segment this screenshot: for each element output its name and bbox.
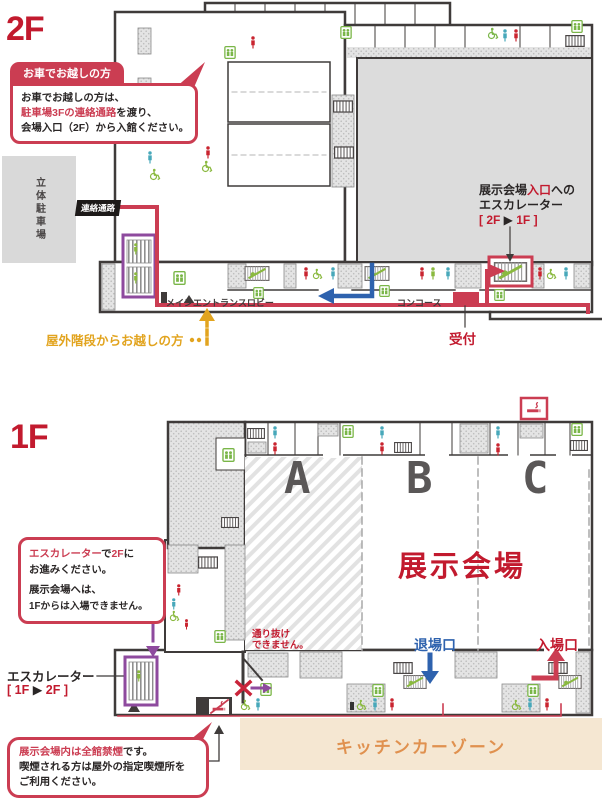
venue-floor-map: 2F お車でお越しの方 お車でお越しの方は、 駐車場3Fの連絡通路を渡り、 会場… — [0, 0, 602, 801]
no-passage-note: 通り抜け できません。 — [252, 629, 309, 651]
car-callout-line2: 駐車場3Fの連絡通路を渡り、 — [21, 106, 187, 121]
stairs-icon — [571, 441, 588, 451]
escalator-note-line3: [ 2F ▶ 1F ] — [479, 213, 575, 228]
escalator-direction: [ 1F ▶ 2F ] — [7, 682, 68, 697]
escalator-callout-line3: 展示会場へは、 — [29, 583, 155, 599]
stairs-icon — [334, 101, 353, 112]
exhibition-hall-label: 展示会場 — [398, 543, 526, 585]
elevator-icon — [343, 426, 353, 438]
stairs-icon — [335, 147, 354, 158]
elevator-icon — [174, 272, 185, 285]
floor2-map — [2, 3, 602, 344]
car-callout-line1: お車でお越しの方は、 — [21, 91, 187, 106]
escalator-note-line2: エスカレーター — [479, 198, 575, 213]
floor1-number: 1F — [10, 418, 48, 457]
stairs-icon — [248, 429, 265, 439]
escalator-icon — [559, 676, 581, 689]
elevator-icon — [373, 685, 383, 697]
elevator-icon — [215, 631, 225, 643]
hall-entrance-escalator-note: 展示会場入口への エスカレーター [ 2F ▶ 1F ] — [479, 183, 575, 228]
outdoor-stairs-arrow — [190, 308, 215, 344]
stairs-icon — [395, 443, 412, 453]
zone-b-label: B — [406, 453, 433, 504]
elevator-icon — [572, 424, 582, 436]
stairs-icon — [199, 557, 218, 568]
elevator-icon — [341, 27, 351, 39]
car-callout-title: お車でお越しの方 — [10, 62, 124, 83]
escalator-callout-line1: エスカレーターで2Fに — [29, 547, 155, 563]
escalator-callout-line4: 1Fからは入場できません。 — [29, 599, 155, 615]
connecting-corridor-label: 連絡通路 — [75, 200, 121, 216]
parking-garage-label: 立体駐車場 — [2, 156, 76, 263]
floor2-number: 2F — [6, 10, 44, 49]
stairs-icon — [394, 663, 412, 674]
elevator-icon — [225, 47, 235, 59]
elevator-icon — [223, 449, 234, 462]
elevator-icon — [572, 21, 582, 33]
escalator-note-line1: 展示会場入口への — [479, 183, 575, 198]
concourse-label: コンコース — [397, 296, 442, 309]
elevator-icon — [528, 685, 538, 697]
outdoor-stairs-note: 屋外階段からお越しの方 — [46, 330, 184, 349]
smoking-area-icon — [521, 398, 547, 419]
main-entrance-lobby-label: メインエントランスロビー — [166, 296, 274, 309]
car-callout-line3: 会場入口（2F）から入館ください。 — [21, 121, 187, 136]
escalator-icon — [365, 267, 389, 281]
no-smoking-line2: 喫煙される方は屋外の指定喫煙所を — [19, 760, 197, 775]
reception-label: 受付 — [449, 328, 476, 348]
entrance-gate-label: 入場口 — [536, 635, 578, 655]
elevator-icon — [380, 286, 389, 297]
hall-void-2f — [357, 58, 592, 262]
zone-c-label: C — [522, 453, 549, 504]
zone-a-label: A — [284, 453, 311, 504]
escalator-callout-line2: お進みください。 — [29, 563, 155, 579]
car-callout-body: お車でお越しの方は、 駐車場3Fの連絡通路を渡り、 会場入口（2F）から入館くだ… — [10, 83, 198, 144]
escalator-outdoor-2f — [123, 235, 155, 297]
stairs-icon — [566, 36, 584, 47]
reception-desk — [453, 292, 479, 305]
escalator-callout: エスカレーターで2Fに お進みください。 展示会場へは、 1Fからは入場できませ… — [18, 537, 166, 624]
exit-gate-label: 退場口 — [414, 635, 456, 655]
no-smoking-callout: 展示会場内は全館禁煙です。 喫煙される方は屋外の指定喫煙所を ご利用ください。 — [7, 737, 209, 798]
escalator-1f-2f — [125, 616, 160, 705]
no-smoking-icon — [209, 699, 229, 714]
escalator-icon — [245, 267, 269, 281]
kitchen-car-zone-label: キッチンカーゾーン — [240, 733, 602, 758]
no-smoking-line1: 展示会場内は全館禁煙です。 — [19, 745, 197, 760]
escalator-icon — [404, 676, 426, 689]
stairs-icon — [222, 518, 239, 528]
no-smoking-line3: ご利用ください。 — [19, 775, 197, 790]
